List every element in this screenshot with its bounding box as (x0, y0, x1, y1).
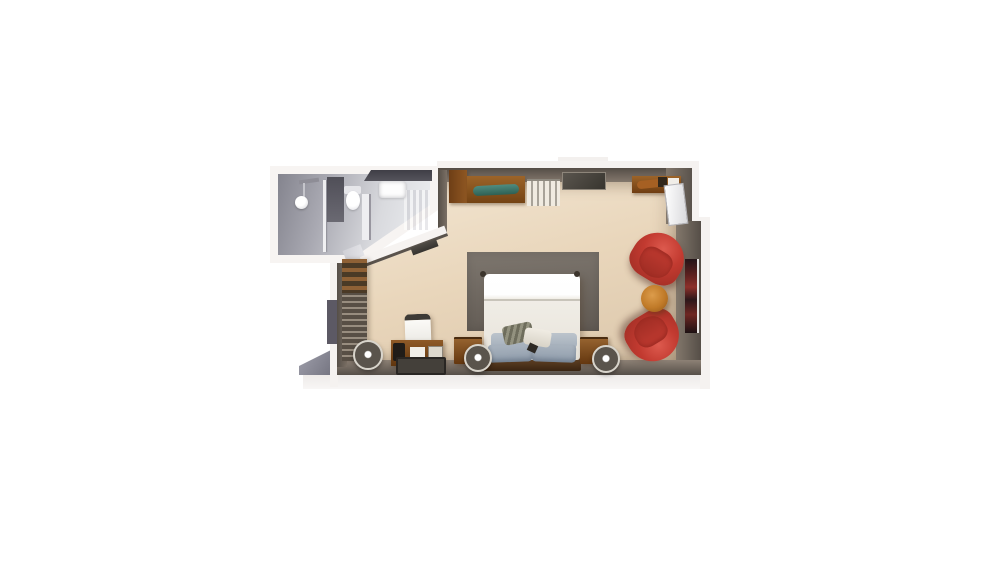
credenza-cabinet (449, 170, 467, 203)
table-lamp-right (592, 345, 620, 373)
radiator (527, 179, 560, 206)
exterior-wall-right-lower (700, 217, 710, 389)
toilet (346, 191, 360, 210)
bathroom-tile-stripes (404, 190, 430, 230)
toilet-partition-wall (362, 194, 371, 240)
entry-door-recess (562, 172, 606, 190)
vanity-sink (379, 181, 406, 198)
exterior-wall-bottom (303, 374, 707, 389)
duvet-fold-line (484, 299, 580, 301)
table-lamp-left (464, 344, 492, 372)
wardrobe-shelves-top (342, 259, 367, 293)
vanity-counter (364, 170, 432, 181)
bed-post-left (480, 271, 486, 277)
desk-floor-mat (396, 357, 446, 375)
side-table (641, 285, 668, 312)
floor-plan-canvas (0, 0, 1000, 563)
shower-partition-panel (327, 177, 344, 222)
floor-lamp (353, 340, 383, 370)
wall-bathroom-side (438, 170, 447, 233)
pillow-lower-left (488, 343, 533, 363)
bed-post-right (574, 271, 580, 277)
shower-arm (303, 183, 305, 197)
wall-artwork (685, 259, 699, 333)
desk-paper (410, 347, 425, 357)
shower-head-icon (295, 196, 308, 209)
shower-glass-screen (323, 180, 326, 252)
